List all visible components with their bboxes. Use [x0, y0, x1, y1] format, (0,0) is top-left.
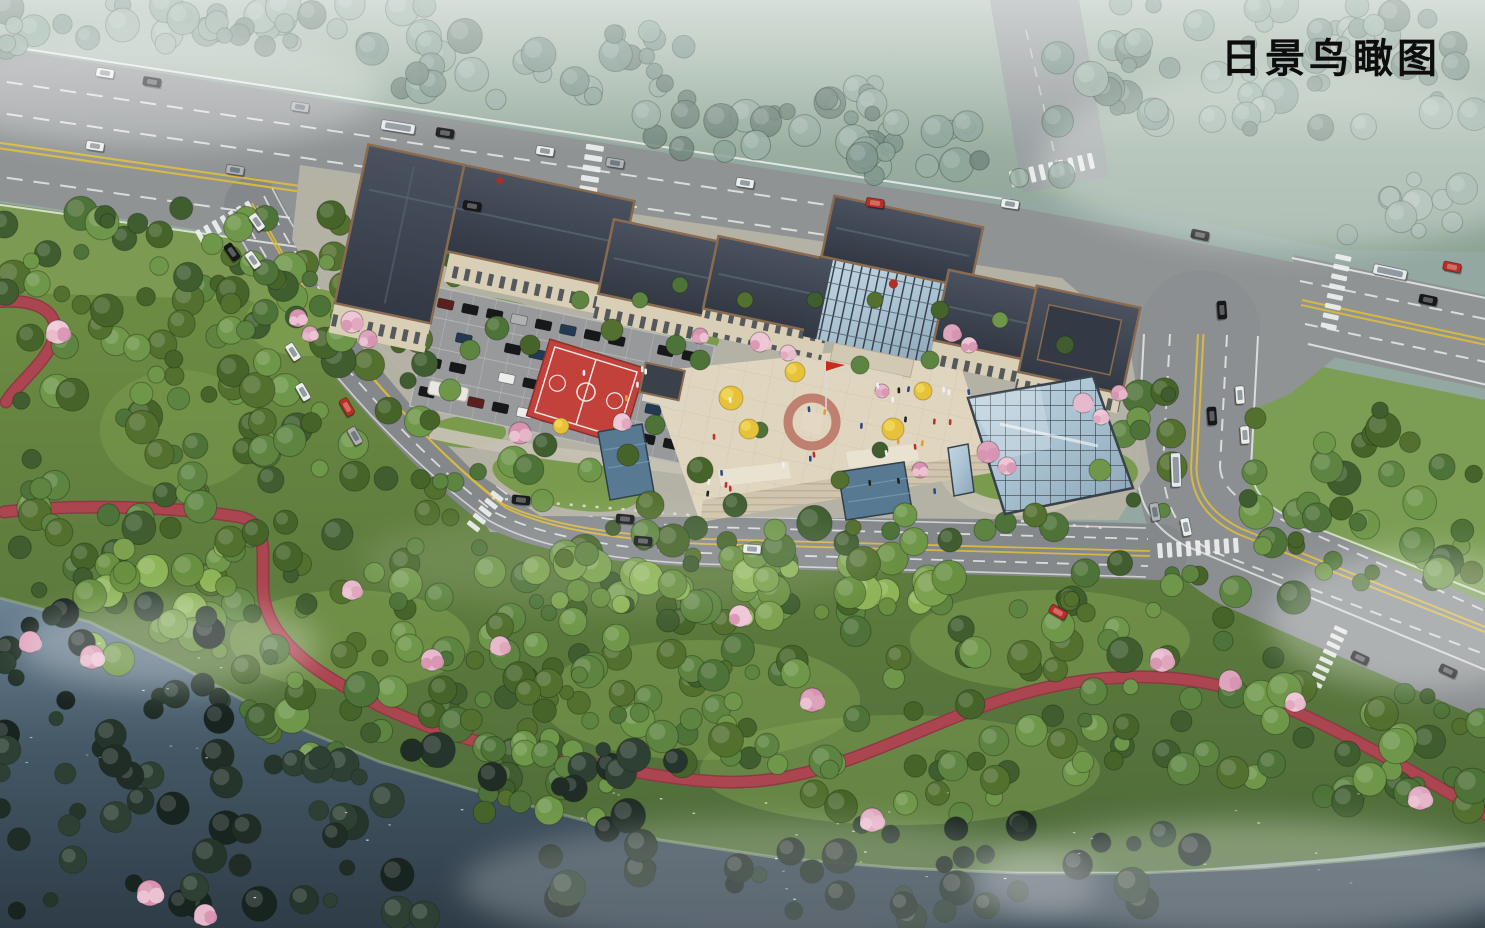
blossom-tree [297, 314, 308, 325]
tree [1434, 703, 1450, 719]
tree [690, 350, 710, 370]
tree-highlight [325, 825, 338, 838]
water-sparkle [99, 757, 102, 758]
tree [617, 444, 639, 466]
tree-highlight [1382, 732, 1400, 750]
tree-highlight [1110, 553, 1123, 566]
tree [466, 651, 484, 669]
tree-highlight [828, 793, 844, 809]
tree-highlight [129, 414, 146, 431]
tree-highlight [245, 522, 258, 535]
tree-highlight [245, 890, 262, 907]
blossom-tree [987, 448, 1000, 461]
tree [74, 244, 89, 259]
tree [851, 356, 869, 374]
tree [167, 387, 189, 409]
tree-highlight [535, 435, 547, 447]
ginkgo-highlight [555, 420, 563, 428]
water-sparkle [1073, 832, 1076, 833]
tree [672, 277, 688, 293]
tree-highlight [276, 545, 291, 560]
tree-highlight [185, 436, 198, 449]
tree [970, 151, 989, 170]
blossom-tree [57, 327, 71, 341]
tree [130, 382, 153, 405]
tree-highlight [251, 411, 265, 425]
tree [867, 292, 883, 308]
blossom-tree [787, 350, 797, 360]
ginkgo-highlight [884, 420, 895, 431]
tree [666, 335, 686, 355]
water-sparkle [693, 813, 696, 814]
tree [509, 791, 531, 813]
tree-highlight [1270, 676, 1288, 694]
tree [609, 706, 626, 723]
tree [319, 255, 334, 270]
view-title: 日景鸟瞰图 [1221, 26, 1441, 84]
tree-highlight [712, 726, 729, 743]
tree-highlight [1126, 383, 1143, 400]
blossom-tree [1285, 700, 1295, 710]
tree [1171, 711, 1192, 732]
tree-highlight [928, 784, 940, 796]
tree-highlight [423, 736, 441, 754]
tree [596, 742, 610, 756]
blossom-tree [912, 468, 920, 476]
tree [1064, 591, 1079, 606]
tree [8, 670, 24, 686]
blossom-tree [739, 612, 752, 625]
tree [571, 291, 589, 309]
blossom-tree [1219, 679, 1230, 690]
water-sparkle [388, 824, 391, 825]
tree [389, 593, 407, 611]
tree-highlight [896, 793, 908, 805]
tree [737, 292, 753, 308]
crosswalk-stripe [1214, 539, 1220, 554]
tree-highlight [148, 442, 163, 457]
blossom-tree [780, 351, 788, 359]
blossom-tree [977, 450, 988, 461]
tree [287, 672, 304, 689]
tree-highlight [1074, 562, 1088, 576]
tree-highlight [846, 708, 859, 721]
tree-highlight [514, 743, 527, 756]
tree [1465, 465, 1482, 482]
tree [309, 746, 331, 768]
tree [1123, 679, 1139, 695]
person [713, 434, 716, 440]
tree [601, 319, 623, 341]
tree-highlight [277, 427, 293, 443]
tree-highlight [0, 263, 17, 281]
tree [13, 392, 30, 409]
tree-highlight [605, 627, 619, 641]
tree-highlight [562, 611, 576, 625]
tree-highlight [125, 514, 142, 531]
medallion-center [800, 410, 824, 434]
crosswalk-stripe [1233, 538, 1239, 553]
tree-highlight [1381, 464, 1394, 477]
tree-highlight [878, 545, 895, 562]
tree-highlight [1415, 728, 1432, 745]
blossom-tree [1294, 698, 1306, 710]
tree-highlight [235, 441, 248, 454]
person [947, 389, 950, 395]
tree-highlight [1050, 731, 1065, 746]
person [641, 366, 644, 372]
tree-highlight [218, 529, 233, 544]
tree-highlight [1335, 788, 1351, 804]
tree-highlight [62, 849, 76, 863]
blossom-tree [621, 418, 632, 429]
tree-highlight [639, 494, 653, 508]
tree-highlight [758, 604, 773, 619]
person [860, 423, 863, 429]
tree [311, 460, 328, 477]
tree-highlight [385, 899, 401, 915]
person [897, 387, 900, 393]
person [583, 370, 586, 376]
tree-highlight [620, 741, 637, 758]
tree-highlight [1025, 505, 1037, 517]
tree-highlight [516, 457, 531, 472]
vehicle-glass [1219, 305, 1225, 315]
tree-highlight [666, 751, 678, 763]
blossom-tree [289, 316, 298, 325]
tree-highlight [139, 558, 156, 575]
tree [724, 693, 742, 711]
blossom-tree [1161, 655, 1175, 669]
tree [165, 350, 183, 368]
tree-highlight [1368, 700, 1385, 717]
tree-highlight [94, 297, 110, 313]
blossom-tree [951, 329, 962, 340]
tree [236, 321, 255, 340]
blossom-tree [351, 586, 363, 598]
tree [1077, 604, 1095, 622]
tree-highlight [660, 642, 675, 657]
tree [1078, 713, 1092, 727]
tree [58, 814, 80, 836]
tree [296, 594, 317, 615]
tree [680, 708, 702, 730]
car [1215, 301, 1227, 321]
tree-highlight [612, 683, 625, 696]
person [891, 397, 894, 403]
tree-highlight [175, 557, 191, 573]
tree [1161, 387, 1176, 402]
blossom-tree [729, 614, 740, 625]
crosswalk-stripe [1157, 543, 1163, 558]
tree [54, 286, 70, 302]
tree [904, 755, 926, 777]
tree-highlight [1261, 753, 1275, 767]
tree-highlight [1356, 766, 1373, 783]
tree-highlight [325, 522, 341, 538]
crosswalk-stripe [1167, 542, 1173, 557]
tree [470, 463, 487, 480]
tree [439, 379, 461, 401]
tree-highlight [74, 546, 88, 560]
blossom-tree [509, 431, 520, 442]
tree [113, 538, 135, 560]
person [897, 438, 900, 444]
person [942, 387, 945, 393]
blossom-tree [519, 429, 532, 442]
tree [657, 609, 680, 632]
blossom-tree [919, 467, 929, 477]
tree [974, 519, 996, 541]
ginkgo-highlight [787, 364, 797, 374]
tree-highlight [235, 817, 250, 832]
tree-highlight [284, 753, 297, 766]
tree [745, 665, 760, 680]
water-sparkle [581, 818, 584, 819]
tree-highlight [431, 679, 445, 693]
blossom-tree [1082, 399, 1094, 411]
tree-highlight [149, 224, 162, 237]
tree-highlight [889, 648, 901, 660]
tree [372, 650, 388, 666]
car [511, 495, 531, 507]
tree [814, 605, 828, 619]
tree [1182, 565, 1199, 582]
tree-highlight [332, 806, 346, 820]
tree-highlight [1045, 660, 1057, 672]
crosswalk-stripe [1204, 540, 1210, 555]
tree-highlight [421, 703, 435, 717]
tree-highlight [384, 861, 401, 878]
tree-highlight [941, 754, 956, 769]
blossom-tree [137, 890, 150, 903]
tree [216, 576, 237, 597]
tree-highlight [373, 787, 390, 804]
person [644, 369, 647, 375]
aerial-rendering: 日景鸟瞰图 [0, 0, 1485, 928]
tree-highlight [398, 637, 412, 651]
tree [1072, 751, 1093, 772]
tree-highlight [597, 819, 610, 832]
tree [400, 372, 416, 388]
tree-highlight [293, 888, 307, 902]
tree [128, 213, 148, 233]
tree [1146, 603, 1161, 618]
tree-highlight [800, 509, 818, 527]
tree [1349, 513, 1367, 531]
blossom-tree [204, 911, 217, 924]
crosswalk-stripe [1186, 541, 1192, 556]
person [949, 419, 952, 425]
tree [374, 467, 398, 491]
tree-highlight [213, 769, 229, 785]
tree-highlight [1220, 760, 1236, 776]
blossom-tree [692, 334, 700, 342]
water-sparkle [142, 690, 145, 691]
tree [30, 478, 52, 500]
tree [57, 691, 75, 709]
tree-highlight [130, 790, 144, 804]
blossom-tree [1408, 796, 1420, 808]
tree-highlight [393, 624, 406, 637]
tree-highlight [1116, 717, 1129, 730]
tree-highlight [1305, 506, 1320, 521]
tree [137, 288, 156, 307]
tree-highlight [1314, 454, 1330, 470]
tree-highlight [1403, 531, 1420, 548]
tree [807, 292, 823, 308]
tree [1263, 647, 1284, 668]
blossom-tree [613, 420, 622, 429]
tree-highlight [1432, 456, 1445, 469]
blossom-tree [881, 388, 889, 396]
tree [1214, 631, 1233, 650]
tree-highlight [37, 243, 50, 256]
blossom-tree [750, 340, 760, 350]
tree [113, 561, 136, 584]
water-sparkle [888, 811, 891, 812]
vehicle-glass [1209, 411, 1215, 421]
tree-highlight [343, 464, 358, 479]
tree [323, 893, 337, 907]
tree [339, 860, 354, 875]
blossom-tree [46, 330, 58, 342]
tree-highlight [160, 795, 176, 811]
blossom-tree [342, 588, 352, 598]
tree [1161, 574, 1184, 597]
blossom-tree [499, 642, 511, 654]
tree-highlight [701, 663, 717, 679]
tree [846, 520, 862, 536]
tree-highlight [940, 530, 952, 542]
tree [148, 366, 165, 383]
water-sparkle [196, 748, 199, 749]
tree-highlight [943, 151, 960, 168]
tree [49, 711, 63, 725]
tree-highlight [935, 564, 952, 581]
tree-highlight [1337, 743, 1350, 756]
blossom-tree [341, 320, 352, 331]
water-sparkle [345, 812, 348, 813]
tree-highlight [1264, 709, 1278, 723]
tree [571, 667, 587, 683]
tree [1126, 493, 1141, 508]
blossom-tree [351, 318, 364, 331]
tree [879, 598, 897, 616]
water-sparkle [617, 794, 620, 795]
tree-highlight [518, 682, 531, 695]
water-sparkle [660, 798, 663, 799]
tree-highlight [1110, 640, 1128, 658]
tree-highlight [243, 376, 261, 394]
tree [202, 233, 223, 254]
tree [100, 214, 115, 229]
blossom-tree [800, 698, 812, 710]
tree [411, 470, 430, 489]
tree [460, 340, 480, 360]
blossom-tree [1118, 390, 1128, 400]
tree [97, 504, 119, 526]
ginkgo-highlight [916, 384, 925, 393]
tree-highlight [690, 460, 703, 473]
tree-highlight [983, 768, 998, 783]
tree-highlight [334, 644, 347, 657]
water-sparkle [366, 840, 369, 841]
tree [1180, 687, 1202, 709]
tree [1288, 532, 1304, 548]
blossom-tree [302, 332, 310, 340]
bus [1169, 453, 1182, 489]
tree-highlight [260, 469, 273, 482]
tree-highlight [895, 505, 907, 517]
tree-highlight [487, 318, 499, 330]
water-sparkle [1235, 810, 1238, 811]
water-sparkle [205, 757, 208, 758]
tree-highlight [59, 382, 75, 398]
tree-highlight [251, 438, 267, 454]
tree-highlight [614, 802, 631, 819]
tree-highlight [501, 449, 517, 465]
tree-highlight [76, 582, 93, 599]
tree-highlight [442, 711, 460, 729]
tree-highlight [725, 495, 737, 507]
blossom-tree [194, 913, 205, 924]
tree-highlight [102, 748, 118, 764]
tree-highlight [958, 693, 973, 708]
tree [1009, 600, 1027, 618]
ginkgo-highlight [741, 421, 751, 431]
tree-highlight [196, 842, 213, 859]
tree [361, 723, 381, 743]
blossom-tree [968, 342, 978, 352]
water-sparkle [1357, 793, 1360, 794]
tree-highlight [1469, 712, 1484, 727]
tree-highlight [212, 814, 229, 831]
tree [1400, 432, 1421, 453]
tree [165, 366, 184, 385]
tree-highlight [534, 743, 547, 756]
tree-highlight [571, 755, 586, 770]
tree [309, 295, 330, 316]
tree [473, 801, 496, 824]
tree-highlight [1458, 772, 1476, 790]
blossom-tree [367, 335, 378, 346]
person [868, 480, 871, 486]
crosswalk-stripe [1223, 538, 1229, 553]
tree [1372, 402, 1389, 419]
tree [1042, 705, 1064, 727]
tree-highlight [356, 352, 372, 368]
water-sparkle [254, 897, 256, 898]
tree-highlight [414, 353, 427, 366]
blossom-tree [1006, 462, 1017, 473]
tree-highlight [537, 799, 552, 814]
person [720, 470, 723, 476]
tree-highlight [67, 200, 84, 217]
tree-highlight [982, 729, 997, 744]
person [729, 485, 732, 491]
water-sparkle [86, 755, 89, 756]
tree [22, 449, 41, 468]
blossom-tree [943, 331, 952, 340]
tree-highlight [320, 203, 334, 217]
blossom-tree [359, 337, 368, 346]
tree-highlight [155, 485, 167, 497]
tree-highlight [171, 313, 185, 327]
tree-highlight [843, 619, 858, 634]
tree-highlight [19, 327, 33, 341]
tree [1330, 497, 1353, 520]
